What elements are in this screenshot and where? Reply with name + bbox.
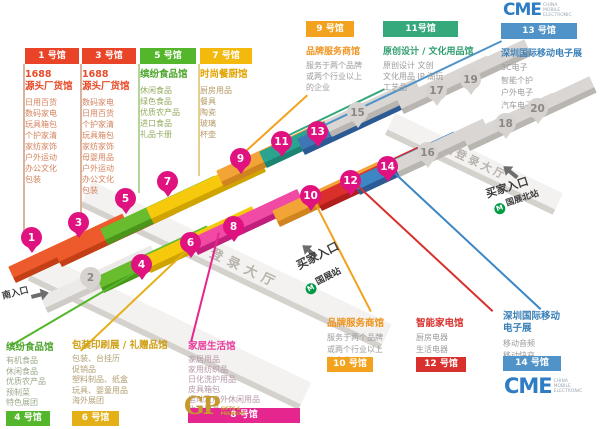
hall-6-title: 包装印刷展 / 礼赠品馆	[72, 337, 184, 351]
hall-11-header: 11号馆	[383, 21, 458, 37]
hall-5-items: 休闲食品 绿色食品 优质农产品 进口食品 礼品卡册	[140, 85, 196, 140]
map-pin-19: 19	[460, 69, 481, 90]
map-pin-13: 13	[307, 121, 328, 142]
hall-6-items: 包装、台挂历 促销品 塑料制品、纸盒 玩具、婴童用品 海外展团	[72, 354, 184, 407]
map-pin-7: 7	[157, 171, 178, 192]
gifts-premium-logo-text: GP	[184, 395, 219, 417]
map-pin-1: 1	[21, 227, 42, 248]
map-pin-9: 9	[230, 148, 251, 169]
cme-logo-text: CME	[503, 2, 541, 19]
hall-4-label: 4 号馆	[6, 411, 50, 426]
map-pin-8: 8	[223, 216, 244, 237]
cme-logo-bottom: CME CHINA MOBILE ELECTRONIC	[504, 376, 582, 397]
hall-9-header: 9 号馆	[306, 21, 354, 37]
hall-11-title: 原创设计 / 文化用品馆	[383, 44, 474, 57]
hall-1-items: 日用百货 数码家电 玩具箱包 个护家清 家纺家饰 户外运动 办公文化 包装	[25, 97, 79, 185]
hall-12-title: 智能家电馆	[416, 315, 486, 329]
south-entrance-label: 南入口	[0, 283, 29, 302]
cme-logo-text: CME	[504, 376, 552, 397]
hall-13-header: 13 号馆	[501, 23, 577, 39]
hall-3-header: 3 号馆	[82, 48, 136, 64]
hall-12-items: 厨房电器 生活电器	[416, 332, 486, 356]
hall-4-items: 有机食品 休闲食品 优质农产品 预制菜 特色展团	[6, 356, 70, 409]
gifts-premium-logo-subtext: GIFTS & PREMIUM	[221, 407, 245, 417]
map-pin-16: 16	[417, 142, 438, 163]
hall-10-label: 10 号馆	[327, 357, 373, 372]
map-pin-12: 12	[340, 170, 361, 191]
map-pin-5: 5	[115, 188, 136, 209]
map-pin-20: 20	[527, 98, 548, 119]
legend-hall-1: 1 号馆 1688 源头厂货馆 日用百货 数码家电 玩具箱包 个护家清 家纺家饰…	[25, 48, 79, 185]
map-pin-4: 4	[131, 254, 152, 275]
metro-station-south-label: 国展站	[314, 266, 343, 287]
hall-5-title: 缤纷食品馆	[140, 69, 196, 81]
legend-hall-9: 9 号馆 品牌服务商馆 服务于两个品牌 或两个行业以上 的企业	[306, 21, 362, 93]
gifts-premium-logo: GP GIFTS & PREMIUM	[184, 395, 245, 417]
cme-logo-subtext: CHINA MOBILE ELECTRONIC	[554, 379, 583, 394]
hall-7-items: 厨房用品 餐具 陶瓷 玻璃 杯壶	[200, 85, 252, 140]
hall-12-label: 12 号馆	[416, 357, 466, 372]
map-pin-14: 14	[377, 156, 398, 177]
hall-14-label: 14 号馆	[503, 356, 561, 371]
map-pin-6: 6	[180, 232, 201, 253]
map-pin-11: 11	[271, 131, 292, 152]
map-pin-3: 3	[68, 212, 89, 233]
zone-hall-12: 智能家电馆 厨房电器 生活电器	[416, 315, 486, 356]
zone-hall-4: 缤纷食品馆 有机食品 休闲食品 优质农产品 预制菜 特色展团	[6, 339, 70, 409]
hall-9-description: 服务于两个品牌 或两个行业以上 的企业	[306, 60, 362, 93]
hall-9-title: 品牌服务商馆	[306, 44, 362, 57]
hall-1-header: 1 号馆	[25, 48, 79, 64]
map-pin-18: 18	[495, 113, 516, 134]
hall-7-header: 7 号馆	[200, 48, 252, 64]
zone-hall-14: 深圳国际移动 电子展 移动音频 移动快充	[503, 311, 583, 361]
legend-hall-3: 3 号馆 1688 源头厂货馆 数码家电 日用百货 个护家清 玩具箱包 家纺家饰…	[82, 48, 136, 196]
hall-3-title: 1688 源头厂货馆	[82, 69, 136, 93]
hall-7-title: 时尚餐厨馆	[200, 69, 252, 81]
map-pin-10: 10	[300, 185, 321, 206]
hall-3-items: 数码家电 日用百货 个护家清 玩具箱包 家纺家饰 母婴用品 户外运动 办公文化 …	[82, 97, 136, 196]
hall-5-header: 5 号馆	[140, 48, 196, 64]
hall-1-title: 1688 源头厂货馆	[25, 69, 79, 93]
hall-6-label: 6 号馆	[72, 411, 119, 426]
cme-logo-subtext: CHINA MOBILE ELECTRONIC	[543, 3, 572, 18]
hall-4-title: 缤纷食品馆	[6, 339, 70, 353]
map-pin-17: 17	[426, 80, 447, 101]
hall-14-title: 深圳国际移动 电子展	[503, 311, 583, 335]
hall-10-title: 品牌服务商馆	[327, 315, 407, 329]
map-pin-15: 15	[347, 102, 368, 123]
legend-hall-7: 7 号馆 时尚餐厨馆 厨房用品 餐具 陶瓷 玻璃 杯壶	[200, 48, 252, 140]
hall-8-title: 家居生活馆	[188, 338, 300, 352]
zone-hall-6: 包装印刷展 / 礼赠品馆 包装、台挂历 促销品 塑料制品、纸盒 玩具、婴童用品 …	[72, 337, 184, 407]
cme-logo-top: CME CHINA MOBILE ELECTRONIC	[503, 2, 572, 19]
legend-hall-5: 5 号馆 缤纷食品馆 休闲食品 绿色食品 优质农产品 进口食品 礼品卡册	[140, 48, 196, 140]
exhibition-floorplan: 1 号馆 1688 源头厂货馆 日用百货 数码家电 玩具箱包 个护家清 家纺家饰…	[0, 0, 600, 429]
map-pin-2: 2	[80, 267, 101, 288]
metro-icon: M	[493, 202, 507, 216]
hall-13-title: 深圳国际移动电子展	[501, 46, 582, 59]
